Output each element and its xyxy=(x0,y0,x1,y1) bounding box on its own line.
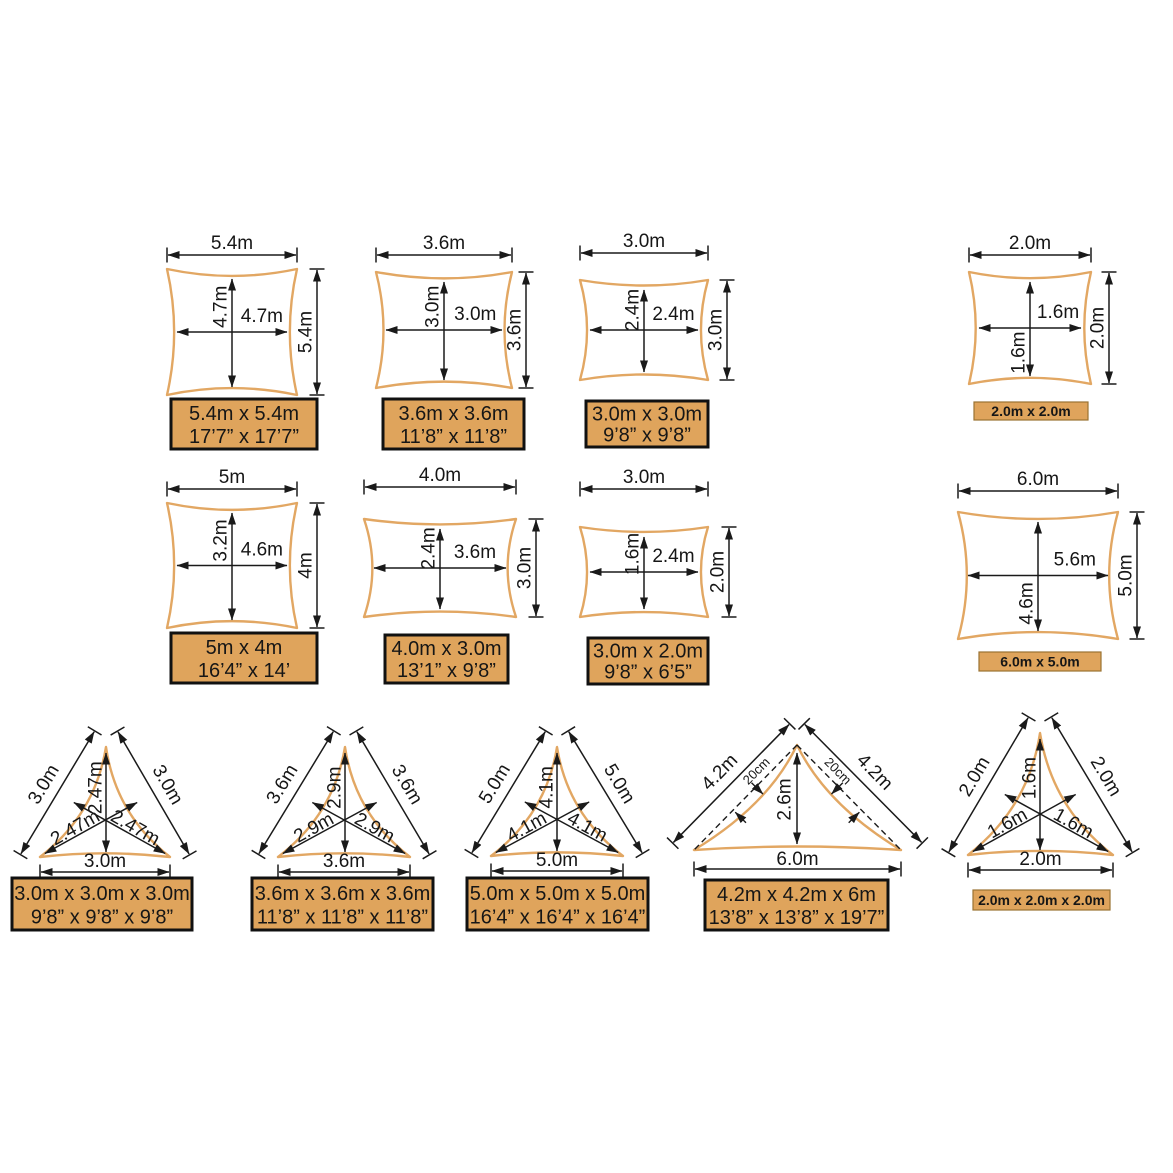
rectangle-3.0x2.0-diagram: 3.0m2.0m2.4m1.6m3.0m x 2.0m9’8” x 6’5” xyxy=(580,467,737,684)
dimension-tick xyxy=(1126,849,1140,857)
dimension-tick xyxy=(327,727,341,735)
dimension-tick xyxy=(14,850,28,858)
side-dimension-label: 5.4m xyxy=(296,311,317,353)
size-label-text: 16’4” x 14’ xyxy=(198,660,290,682)
triangle-5.0-diagram: 5.0m5.0m5.0m4.1m4.1m4.1m5.0m x 5.0m x 5.… xyxy=(465,727,650,930)
rectangle-4.0x3.0-diagram: 4.0m3.0m3.6m2.4m4.0m x 3.0m13’1” x 9’8” xyxy=(364,465,544,683)
top-dimension-label: 6.0m xyxy=(1017,469,1059,490)
size-label-text: 5.0m x 5.0m x 5.0m xyxy=(470,883,646,905)
inner-height-label: 2.4m xyxy=(623,289,644,331)
square-2.0x2.0-diagram: 2.0m2.0m1.6m1.6m2.0m x 2.0m xyxy=(969,233,1117,420)
top-dimension-label: 4.0m xyxy=(419,465,461,486)
size-label-text: 5m x 4m xyxy=(206,637,283,659)
size-label-text: 13’1” x 9’8” xyxy=(397,660,496,682)
inner-width-label: 5.6m xyxy=(1054,550,1096,571)
triangle-4.2x4.2x6-diagram: 4.2m4.2m6.0m2.6m20cm20cm4.2m x 4.2m x 6m… xyxy=(667,718,928,930)
size-label-text: 11’8” x 11’8” x 11’8” xyxy=(257,907,428,929)
side-dimension-label: 4.2m xyxy=(698,750,743,795)
size-label-text: 9’8” x 6’5” xyxy=(604,661,692,683)
sag-arrow xyxy=(752,783,763,794)
size-label-text: 17’7” x 17’7” xyxy=(189,426,299,448)
inner-height-label: 4.6m xyxy=(1017,582,1038,624)
dimension-tick xyxy=(561,727,575,735)
bottom-dimension-label: 6.0m xyxy=(776,849,818,870)
triangle-2.0-diagram: 2.0m2.0m2.0m1.6m1.6m1.6m2.0m x 2.0m x 2.… xyxy=(942,713,1140,910)
inner-width-label: 4.6m xyxy=(241,540,283,561)
inner-dimension-label: 2.9m xyxy=(325,767,346,809)
size-label-text: 4.2m x 4.2m x 6m xyxy=(717,884,876,906)
dimension-tick xyxy=(252,850,266,858)
side-dimension-label: 3.0m xyxy=(148,761,187,808)
inner-width-label: 2.4m xyxy=(652,546,694,567)
dimension-tick xyxy=(111,727,125,735)
size-label-text: 9’8” x 9’8” xyxy=(603,424,691,446)
triangle-3.0-diagram: 3.0m3.0m3.0m2.47m2.47m2.47m3.0m x 3.0m x… xyxy=(12,727,196,930)
dimension-tick xyxy=(88,727,102,735)
inner-width-label: 3.0m xyxy=(454,304,496,325)
top-dimension-label: 5m xyxy=(219,467,245,488)
size-label-text: 6.0m x 5.0m xyxy=(1000,653,1079,669)
side-dimension-label: 3.0m xyxy=(24,761,64,808)
square-5.4x5.4-diagram: 5.4m5.4m4.7m4.7m5.4m x 5.4m17’7” x 17’7” xyxy=(167,233,325,449)
size-label-text: 3.0m x 3.0m x 3.0m xyxy=(14,883,190,905)
top-dimension-label: 5.4m xyxy=(211,233,253,254)
inner-height-label: 1.6m xyxy=(623,533,644,575)
size-label-text: 2.0m x 2.0m xyxy=(991,403,1070,419)
bottom-dimension-label: 5.0m xyxy=(536,850,578,871)
bottom-dimension-label: 3.6m xyxy=(323,851,365,872)
size-label-text: 9’8” x 9’8” x 9’8” xyxy=(31,907,173,929)
dimension-tick xyxy=(423,851,437,859)
size-label-text: 4.0m x 3.0m xyxy=(391,638,501,660)
square-3.0x3.0-diagram: 3.0m3.0m2.4m2.4m3.0m x 3.0m9’8” x 9’8” xyxy=(580,231,735,447)
top-dimension-label: 3.0m xyxy=(623,467,665,488)
inner-height-label: 2.4m xyxy=(419,527,440,569)
size-label-text: 16’4” x 16’4” x 16’4” xyxy=(470,907,646,929)
dimension-tick xyxy=(539,727,553,735)
sag-label: 20cm xyxy=(822,754,855,787)
sag-label: 20cm xyxy=(740,754,773,787)
size-label-text: 13’8” x 13’8” x 19’7” xyxy=(709,907,885,929)
side-dimension-label: 3.6m xyxy=(505,309,526,351)
dimension-tick xyxy=(636,849,650,857)
inner-height-label: 1.6m xyxy=(1009,332,1030,374)
side-dimension-label: 5.0m xyxy=(475,760,515,807)
inner-width-label: 3.6m xyxy=(454,542,496,563)
side-dimension-label: 3.6m xyxy=(387,761,427,808)
rectangle-6.0x5.0-diagram: 6.0m5.0m5.6m4.6m6.0m x 5.0m xyxy=(958,469,1145,671)
side-dimension-label: 4.2m xyxy=(852,750,897,795)
size-label-text: 3.0m x 3.0m xyxy=(592,403,702,425)
square-3.6x3.6-diagram: 3.6m3.6m3.0m3.0m3.6m x 3.6m11’8” x 11’8” xyxy=(376,233,534,449)
triangle-3.6-diagram: 3.6m3.6m3.6m2.9m2.9m2.9m3.6m x 3.6m x 3.… xyxy=(252,727,437,930)
side-dimension-label: 2.0m xyxy=(1088,307,1109,349)
side-dimension-label: 3.0m xyxy=(706,309,727,351)
inner-width-label: 1.6m xyxy=(1037,302,1079,323)
inner-height-label: 4.7m xyxy=(211,286,232,328)
side-dimension-label: 2.0m xyxy=(708,551,729,593)
inner-height-label: 3.0m xyxy=(423,286,444,328)
shade-sail-size-chart: 5.4m5.4m4.7m4.7m5.4m x 5.4m17’7” x 17’7”… xyxy=(0,0,1173,1173)
side-dimension-label: 3.0m xyxy=(515,547,536,589)
side-dimension-label: 2.0m xyxy=(1086,753,1126,800)
size-label-text: 5.4m x 5.4m xyxy=(189,403,299,425)
side-dimension-label: 3.6m xyxy=(263,761,303,808)
inner-width-label: 2.4m xyxy=(652,304,694,325)
side-dimension-label: 5.0m xyxy=(599,760,639,807)
top-dimension-label: 2.0m xyxy=(1009,233,1051,254)
sag-arrow xyxy=(831,783,842,794)
size-chart-canvas: 5.4m5.4m4.7m4.7m5.4m x 5.4m17’7” x 17’7”… xyxy=(0,0,1173,1173)
inner-dimension-label: 4.1m xyxy=(537,766,558,808)
height-label: 2.6m xyxy=(775,778,796,820)
dimension-tick xyxy=(350,727,364,735)
dimension-tick xyxy=(1022,713,1036,721)
rectangle-5x4-diagram: 5m4m4.6m3.2m5m x 4m16’4” x 14’ xyxy=(167,467,325,683)
size-label-text: 11’8” x 11’8” xyxy=(400,426,507,448)
inner-width-label: 4.7m xyxy=(241,306,283,327)
side-dimension-label: 4m xyxy=(296,552,317,578)
bottom-dimension-label: 2.0m xyxy=(1019,849,1061,870)
dimension-tick xyxy=(1044,713,1058,721)
inner-dimension-label: 2.47m xyxy=(86,761,107,814)
dimension-tick xyxy=(942,849,956,857)
size-label-text: 3.6m x 3.6m x 3.6m xyxy=(255,883,431,905)
side-dimension-label: 2.0m xyxy=(955,753,995,800)
size-label-text: 2.0m x 2.0m x 2.0m xyxy=(978,892,1105,908)
inner-dimension-label: 1.6m xyxy=(1020,757,1041,799)
bottom-dimension-label: 3.0m xyxy=(84,851,126,872)
dimension-tick xyxy=(183,851,197,859)
dimension-tick xyxy=(465,849,479,857)
inner-height-label: 3.2m xyxy=(211,519,232,561)
size-label-text: 3.0m x 2.0m xyxy=(593,640,703,662)
top-dimension-label: 3.0m xyxy=(623,231,665,252)
size-label-text: 3.6m x 3.6m xyxy=(398,403,508,425)
top-dimension-label: 3.6m xyxy=(423,233,465,254)
side-dimension-label: 5.0m xyxy=(1116,554,1137,596)
